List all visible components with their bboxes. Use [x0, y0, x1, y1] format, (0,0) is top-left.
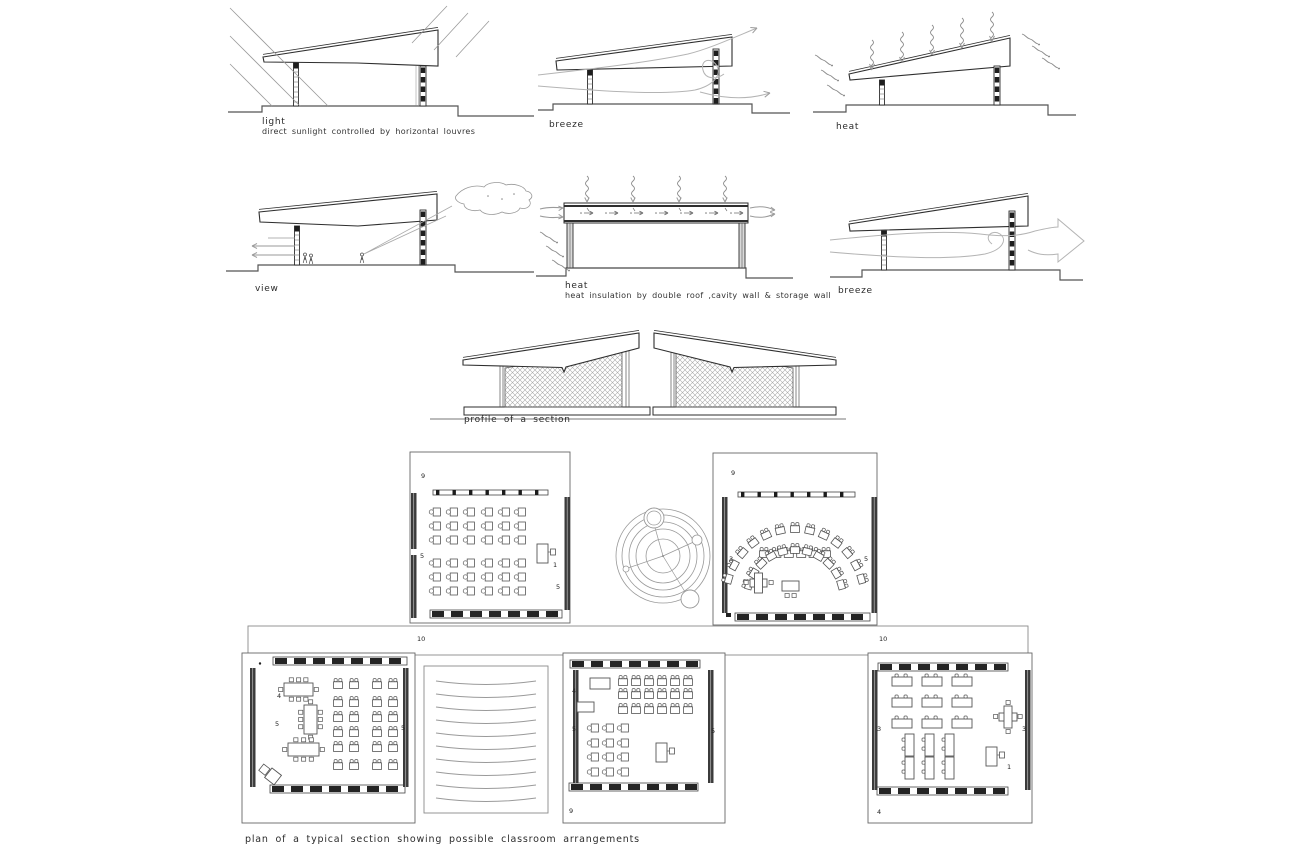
room-number: 4: [277, 692, 281, 700]
label-breeze-top: breeze: [549, 120, 584, 130]
room-number: 5: [556, 583, 560, 591]
room-number: 5: [275, 720, 279, 728]
corridor-number: 10: [879, 635, 887, 643]
classroom-plan-unit-a: [410, 452, 570, 623]
classroom-plan-unit-c: [242, 653, 415, 823]
label-view: view: [255, 284, 279, 294]
profile-section-drawing: [430, 330, 846, 419]
orbital-circles-diagram: [616, 508, 710, 608]
classroom-plan-unit-e: [868, 653, 1032, 823]
section-study-view: [226, 183, 534, 272]
label-heat-top: heat: [836, 122, 859, 132]
section-study-heat-top: [813, 12, 1076, 115]
room-number: 5: [420, 552, 424, 560]
section-study-light: [228, 6, 534, 116]
architecture-presentation-sheet: light direct sunlight controlled by hori…: [0, 0, 1300, 860]
label-heat-bottom: heat: [565, 281, 588, 291]
room-number: 3: [1022, 725, 1026, 733]
classroom-plan-unit-b: [713, 453, 877, 625]
room-number: 9: [421, 472, 425, 480]
room-number: 4: [572, 687, 576, 695]
section-study-heat-insulation: [536, 176, 793, 278]
room-number: 1: [1007, 763, 1011, 771]
label-heat-bottom-sub: heat insulation by double roof ,cavity w…: [565, 291, 831, 300]
corridor-number: 10: [417, 635, 425, 643]
room-number: 5: [711, 727, 715, 735]
room-number: 3: [877, 725, 881, 733]
label-light-sub: direct sunlight controlled by horizontal…: [262, 127, 475, 136]
room-number: 5: [864, 555, 868, 563]
room-number: 4: [877, 808, 881, 816]
label-breeze-bottom: breeze: [838, 286, 873, 296]
room-number: 9: [569, 807, 573, 815]
drawing-canvas: light direct sunlight controlled by hori…: [0, 0, 1300, 860]
room-number: 1: [553, 561, 557, 569]
room-number: 5: [401, 724, 405, 732]
corridor-plan: [248, 626, 1028, 655]
section-study-breeze-bottom: [830, 193, 1084, 280]
room-number: 9: [731, 469, 735, 477]
room-number: 5: [572, 725, 576, 733]
room-number: 3: [729, 555, 733, 563]
label-profile: profile of a section: [464, 415, 571, 425]
classroom-plan-unit-d: [563, 653, 725, 823]
label-light: light: [262, 117, 285, 127]
section-study-breeze-top: [538, 25, 790, 113]
plan-caption: plan of a typical section showing possib…: [245, 834, 640, 845]
amphitheater-steps: [424, 666, 548, 813]
